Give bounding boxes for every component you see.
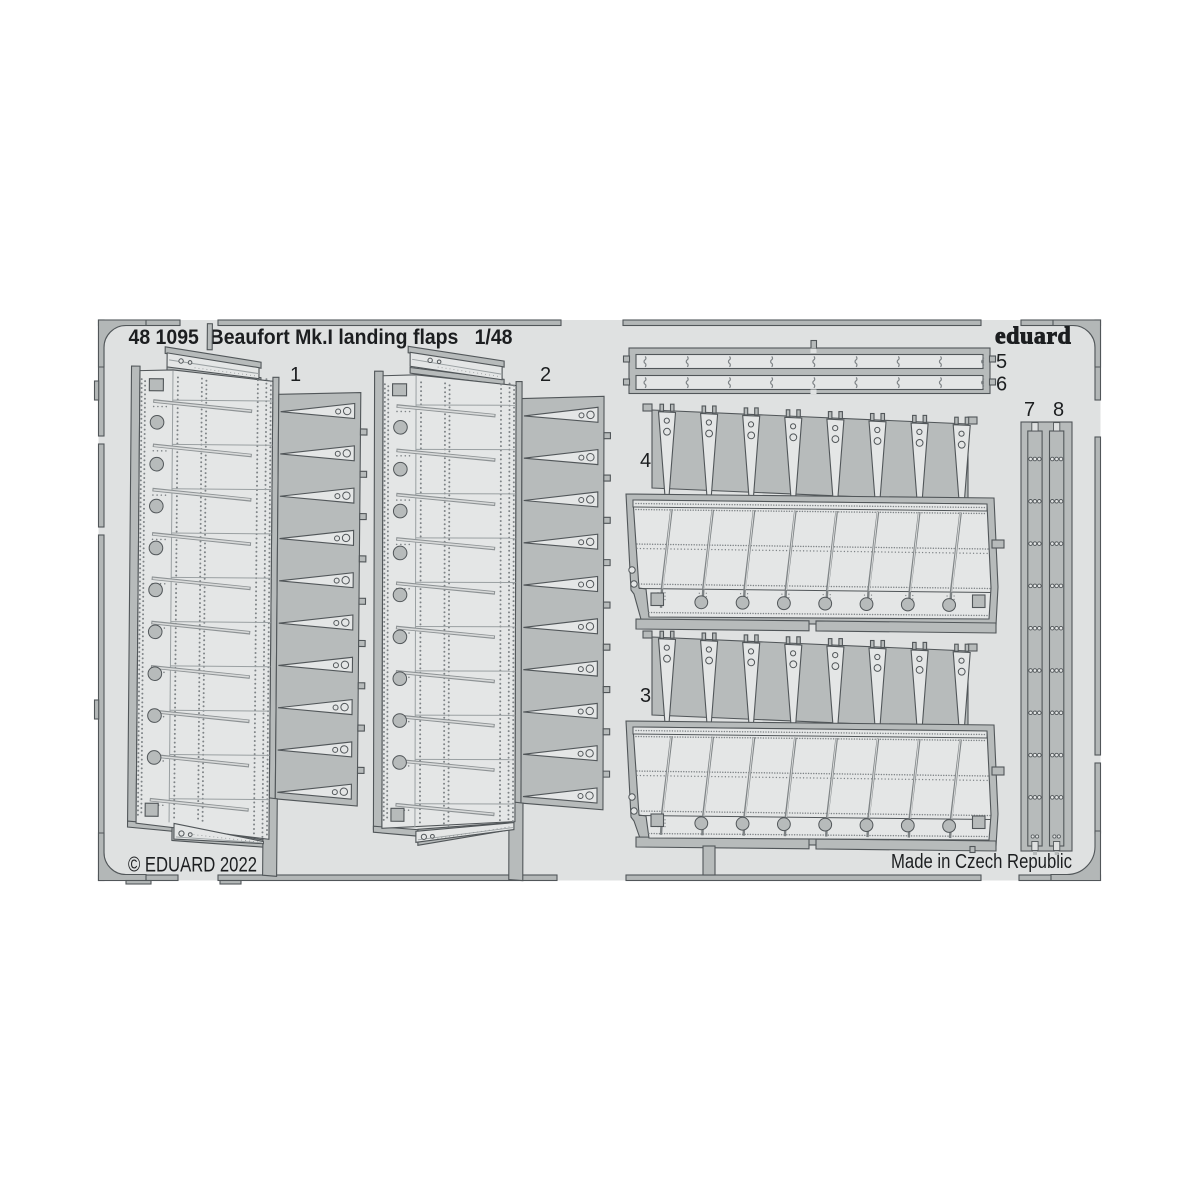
svg-text:4: 4 (640, 450, 651, 472)
svg-text:8: 8 (1053, 399, 1064, 421)
svg-text:1: 1 (290, 364, 301, 386)
svg-text:Made in Czech Republic: Made in Czech Republic (891, 850, 1072, 873)
svg-text:eduard: eduard (995, 324, 1072, 350)
svg-text:6: 6 (996, 374, 1007, 396)
svg-text:48 1095 Beaufort Mk.I landing: 48 1095 Beaufort Mk.I landing flaps 1/48 (129, 325, 513, 349)
svg-text:5: 5 (996, 351, 1007, 373)
svg-text:© EDUARD 2022: © EDUARD 2022 (128, 854, 257, 877)
svg-text:2: 2 (540, 364, 551, 386)
svg-text:7: 7 (1024, 399, 1035, 421)
svg-text:3: 3 (640, 685, 651, 707)
